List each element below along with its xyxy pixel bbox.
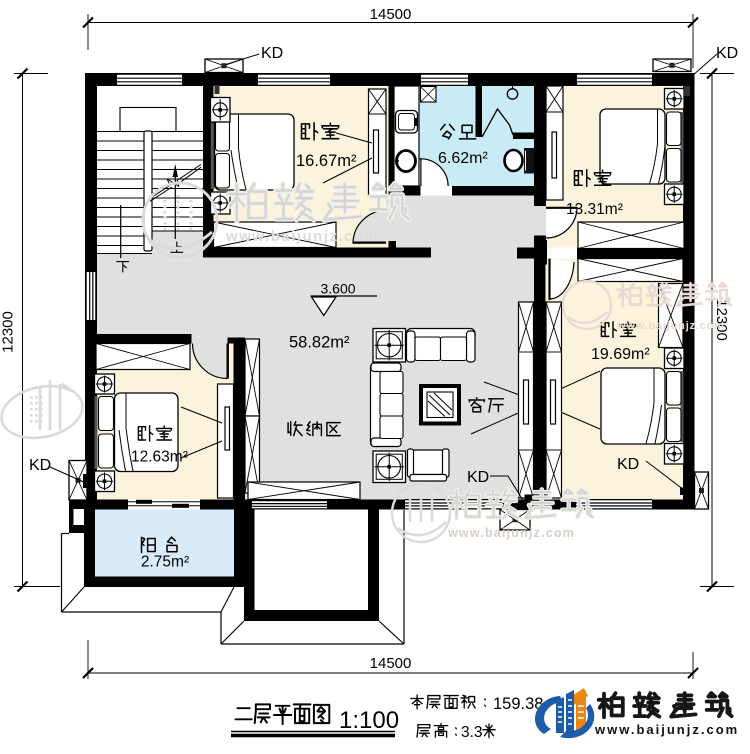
svg-text:www.baijunjz.com: www.baijunjz.com — [616, 320, 725, 332]
svg-text:www.baijunjz.com: www.baijunjz.com — [594, 722, 739, 737]
svg-text:KD: KD — [716, 45, 738, 62]
svg-text:www.baijunjz.com: www.baijunjz.com — [447, 526, 575, 540]
svg-text:58.82m²: 58.82m² — [289, 334, 350, 352]
svg-text:12300: 12300 — [0, 311, 17, 353]
svg-text:1:100: 1:100 — [339, 707, 399, 734]
svg-text:14500: 14500 — [370, 655, 412, 672]
svg-text:159.38: 159.38 — [493, 695, 543, 713]
svg-text:2.75m²: 2.75m² — [141, 554, 189, 571]
svg-text:KD: KD — [617, 456, 639, 473]
svg-text:16.67m²: 16.67m² — [296, 152, 357, 170]
svg-text:3.600: 3.600 — [321, 281, 356, 297]
svg-text:13.31m²: 13.31m² — [566, 201, 623, 218]
svg-text:KD: KD — [29, 457, 51, 474]
svg-text:12.63m²: 12.63m² — [131, 449, 188, 466]
svg-text:KD: KD — [467, 469, 489, 486]
svg-text:6.62m²: 6.62m² — [438, 150, 488, 167]
svg-text:3.3: 3.3 — [461, 724, 483, 741]
svg-text:www.baijunjz.com: www.baijunjz.com — [225, 228, 379, 245]
svg-text:KD: KD — [261, 45, 283, 62]
svg-text:14500: 14500 — [370, 6, 412, 23]
svg-text:19.69m²: 19.69m² — [591, 346, 650, 363]
